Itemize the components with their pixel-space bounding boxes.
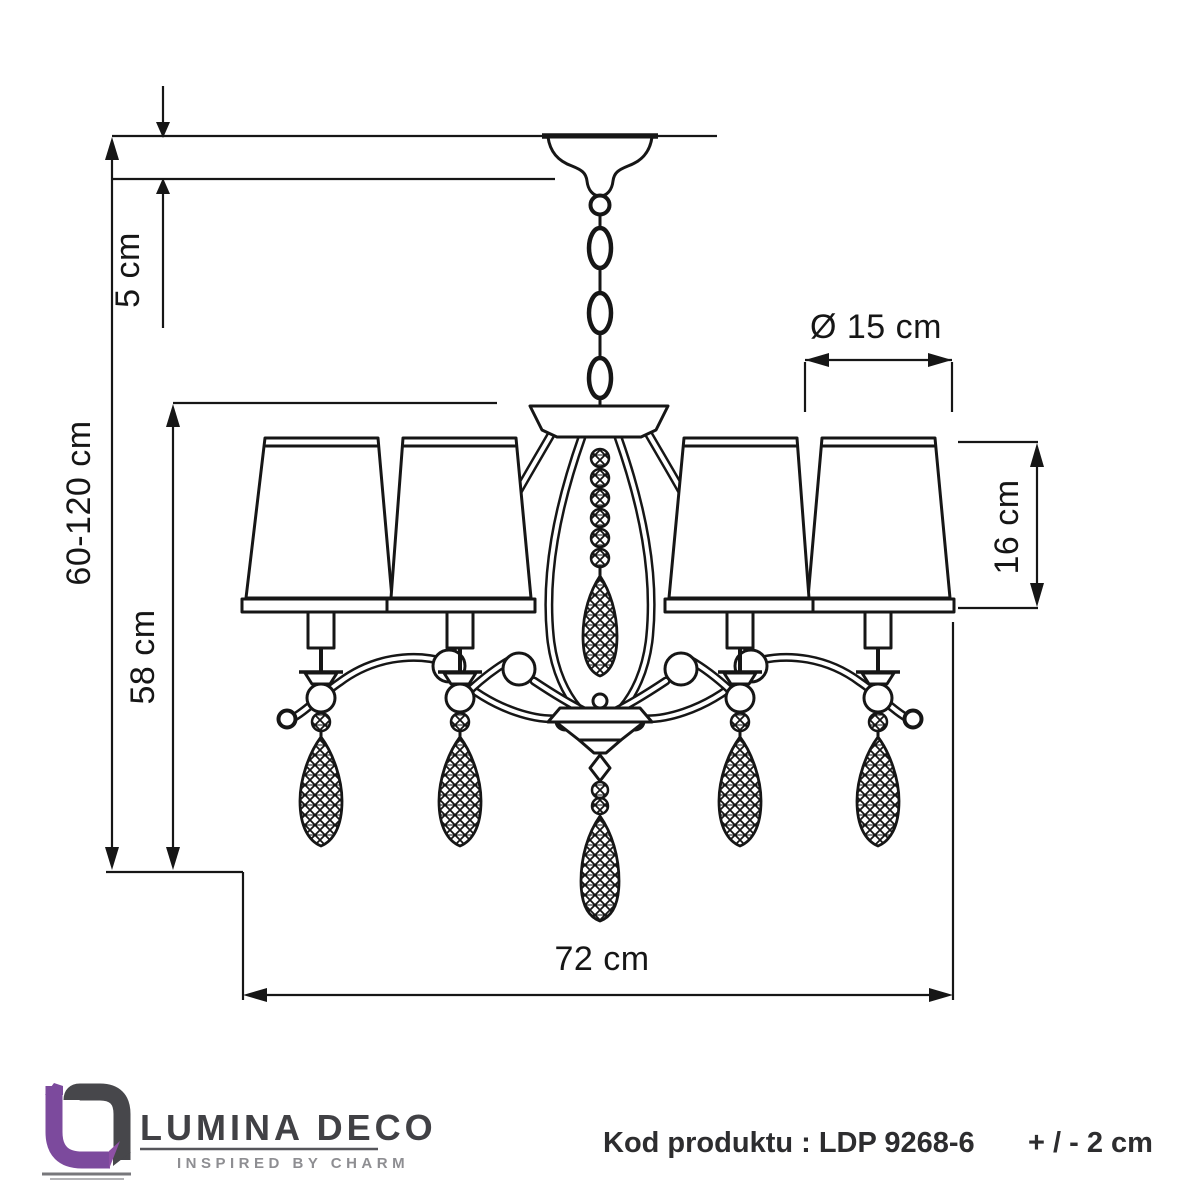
bottom-crystal-drop [581,782,619,921]
lampshade-2 [387,438,535,612]
center-bead-column [583,449,617,676]
crystal-drop-1 [300,737,342,846]
candle-holder-3 [718,612,762,846]
lampshade-3 [665,438,813,612]
dimension-shade-height: 16 cm [958,442,1044,608]
tolerance-text: + / - 2 cm [1028,1127,1153,1159]
brand-name: LUMINA DECO [140,1107,437,1148]
crystal-drop-4 [857,737,899,846]
crystal-drop-3 [719,737,761,846]
chandelier-dimension-diagram: 5 cm 60-120 cm 58 cm Ø 15 cm 16 cm [0,0,1201,1201]
bottom-hub [548,694,652,781]
brand-tagline: INSPIRED BY CHARM [177,1155,409,1172]
lumina-deco-logo: LUMINA DECO INSPIRED BY CHARM [42,1083,437,1179]
dimension-label: 16 cm [988,479,1026,574]
product-code-text: Kod produktu : LDP 9268-6 [603,1127,975,1159]
crystal-drop-2 [439,737,481,846]
candle-holder-2 [438,612,482,846]
dimension-shade-diameter: Ø 15 cm [805,308,952,412]
ceiling-canopy [548,137,652,215]
chandelier-drawing [242,137,954,921]
hanging-chain [589,215,611,406]
dimension-ceiling-offset: 5 cm [109,86,170,328]
dimension-label: 72 cm [554,940,649,978]
diagram-svg: 5 cm 60-120 cm 58 cm Ø 15 cm 16 cm [0,0,1201,1201]
footer: Kod produktu : LDP 9268-6 + / - 2 cm [603,1127,1153,1159]
lampshade-4 [804,438,954,612]
candle-holder-1 [299,612,343,846]
candle-holder-4 [856,612,900,846]
dimension-label: 60-120 cm [60,420,98,585]
dimension-label: 58 cm [124,609,162,704]
lumina-deco-logo-mark [42,1083,131,1179]
center-crystal-drop [583,576,617,676]
dimension-label: Ø 15 cm [810,308,942,346]
lampshade-1 [242,438,396,612]
top-cap [530,406,668,437]
dimension-label: 5 cm [109,232,147,308]
